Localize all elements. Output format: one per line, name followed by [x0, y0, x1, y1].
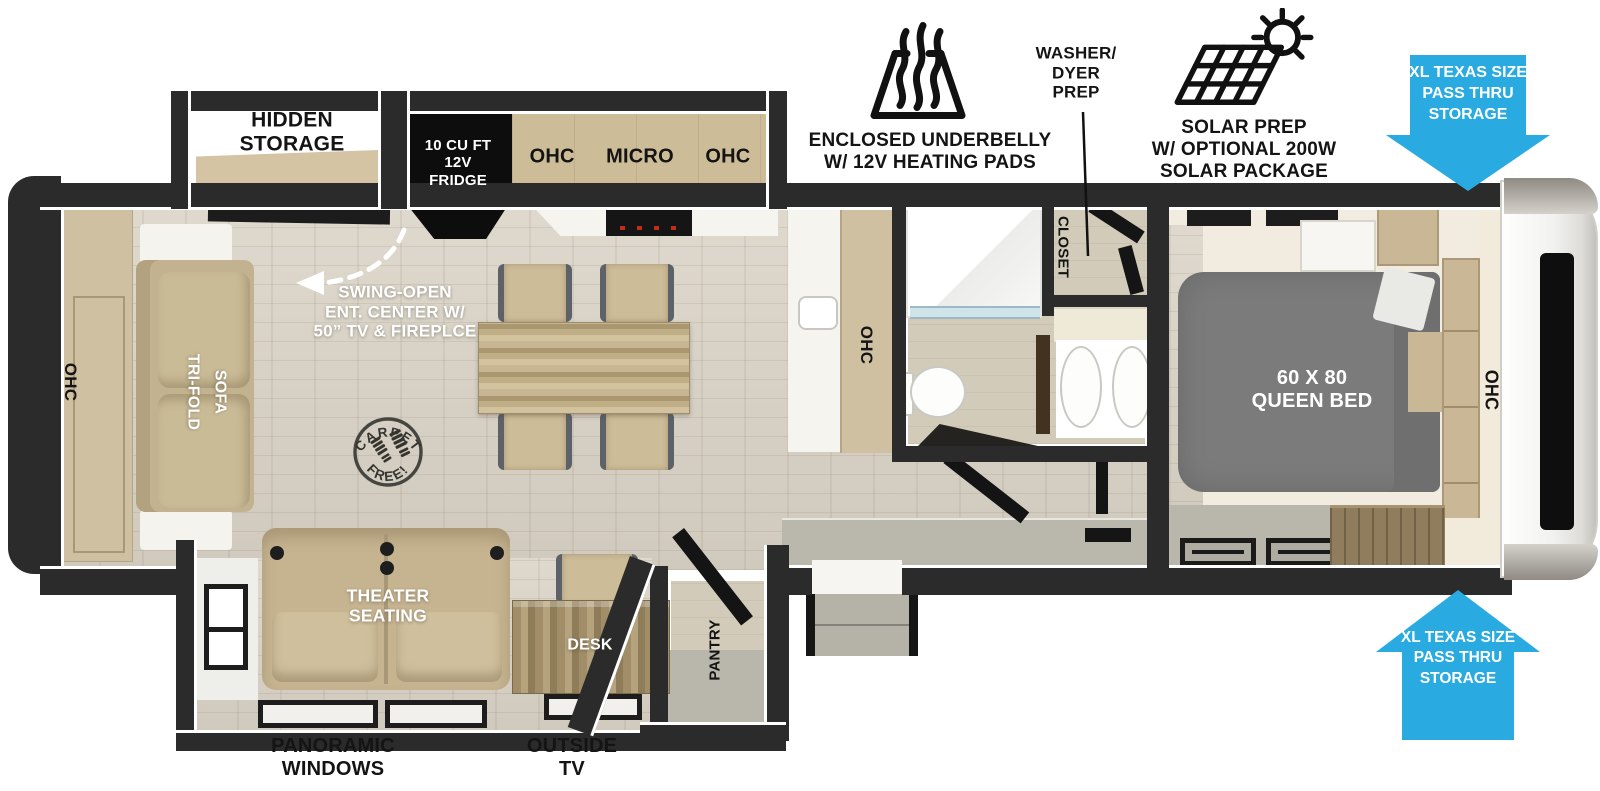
shower: [906, 207, 1042, 318]
dinette-chair-2: [600, 264, 674, 322]
bathroom-wall-bottom: [892, 446, 1147, 462]
rear-cap-wall: [8, 176, 64, 574]
entry-doorway-threshold: [812, 560, 902, 594]
carpet-free-badge: CARPET FREE!: [346, 412, 430, 494]
heating-pads-icon: [858, 8, 978, 126]
bedroom-cream-strip: [1445, 518, 1480, 566]
sofa-pillow-top: [140, 224, 232, 264]
outside-tv-label: OUTSIDE TV: [527, 735, 617, 781]
closet-label: CLOSET: [1054, 216, 1071, 278]
theater-cupholder-4: [490, 546, 504, 560]
pass-thru-top-label: XL TEXAS SIZE PASS THRU STORAGE: [1400, 62, 1536, 125]
sofa-label-trifold: TRI-FOLD: [183, 354, 202, 430]
front-cap-trim-bottom: [1504, 544, 1598, 580]
counter-ohc-label: OHC: [856, 326, 876, 364]
closet-wall-bottom: [1054, 295, 1147, 307]
dinette-chair-1: [498, 264, 572, 322]
bedroom-bottom-window-1: [1180, 538, 1256, 566]
fridge-label: 10 CU FT 12V FRIDGE: [425, 137, 492, 189]
pantry-wall-right: [764, 545, 789, 741]
bed-label: 60 X 80 QUEEN BED: [1252, 367, 1373, 413]
rear-ohc-cabinet-panel: [73, 296, 125, 553]
pass-thru-arrow-top-head: [1386, 135, 1550, 191]
bathroom-wall-left: [892, 195, 906, 461]
bedroom-wall-left: [1147, 195, 1169, 592]
panoramic-window-2: [385, 700, 487, 728]
theater-label: THEATER SEATING: [347, 586, 430, 627]
vanity-sink-1: [1060, 346, 1102, 428]
panoramic-window-1: [258, 700, 378, 728]
bedroom-dresser-bottom: [1330, 505, 1445, 569]
vanity-sinks: [1056, 340, 1147, 438]
dinette-chair-3: [498, 412, 572, 470]
solar-panel-sun-icon: [1170, 8, 1320, 116]
panoramic-windows-label: PANORAMIC WINDOWS: [271, 735, 395, 781]
desk-label: DESK: [567, 637, 612, 656]
vanity-counter: [1054, 307, 1147, 342]
theater-slide-wall-left: [176, 540, 197, 748]
dinette-table: [478, 322, 690, 414]
kitchen-sink: [798, 296, 838, 330]
bottom-wall-stub: [786, 565, 812, 595]
solar-label: SOLAR PREP W/ OPTIONAL 200W SOLAR PACKAG…: [1152, 117, 1336, 183]
ent-center-label: SWING-OPEN ENT. CENTER W/ 50” TV & FIREP…: [313, 282, 476, 341]
shower-glass-door: [910, 306, 1040, 319]
closet-wall-left: [1042, 195, 1054, 316]
slide-side-window-mullion: [209, 627, 243, 632]
hall-door-jamb-1: [1096, 458, 1108, 514]
toilet-bowl: [910, 366, 966, 418]
hidden-storage-label: HIDDEN STORAGE: [240, 109, 345, 158]
theater-cupholder-3: [380, 561, 394, 575]
top-slide-divider-wall: [378, 91, 410, 209]
sofa-cushion-2: [158, 394, 250, 508]
stove-indicator-lights: [620, 226, 678, 230]
front-cap-window: [1540, 253, 1574, 530]
top-slide-wall-right: [766, 91, 787, 209]
bedroom-wardrobe: [1442, 258, 1480, 560]
washer-dryer-label: WASHER/ DYER PREP: [1036, 43, 1117, 102]
slide-side-window: [204, 584, 248, 670]
top-slide-wall-left: [171, 91, 191, 209]
kitchen-ohc-label: OHC MICRO OHC: [530, 145, 751, 168]
rear-ohc-label: OHC: [60, 363, 80, 401]
rv-floorplan-diagram: CARPET FREE! ENCLOSED UNDERBELLY W/ 1: [0, 0, 1600, 791]
bedroom-dresser-top: [1300, 220, 1376, 272]
bed-shelf: [1408, 332, 1442, 412]
bedroom-overhead-cabinet: [1377, 202, 1439, 266]
theater-cupholder-2: [380, 542, 394, 556]
dinette-chair-4: [600, 412, 674, 470]
entry-step-edge: [815, 624, 909, 626]
pantry-wall-bottom: [640, 722, 786, 751]
sofa-label-sofa: SOFA: [210, 370, 229, 414]
underbelly-label: ENCLOSED UNDERBELLY W/ 12V HEATING PADS: [809, 130, 1052, 174]
sofa-cushion-1: [158, 272, 250, 388]
bathroom-door: [1036, 335, 1050, 434]
entry-steps: [806, 594, 918, 656]
pass-thru-bottom-label: XL TEXAS SIZE PASS THRU STORAGE: [1396, 628, 1520, 689]
hall-door-jamb-2: [1085, 528, 1131, 542]
vanity-sink-2: [1112, 346, 1147, 428]
theater-cupholder-1: [270, 546, 284, 560]
theater-slide-wall-right: [650, 566, 668, 748]
pantry-label: PANTRY: [706, 619, 723, 680]
bottom-wall-left: [40, 566, 176, 595]
bedroom-ohc-label: OHC: [1481, 370, 1502, 411]
